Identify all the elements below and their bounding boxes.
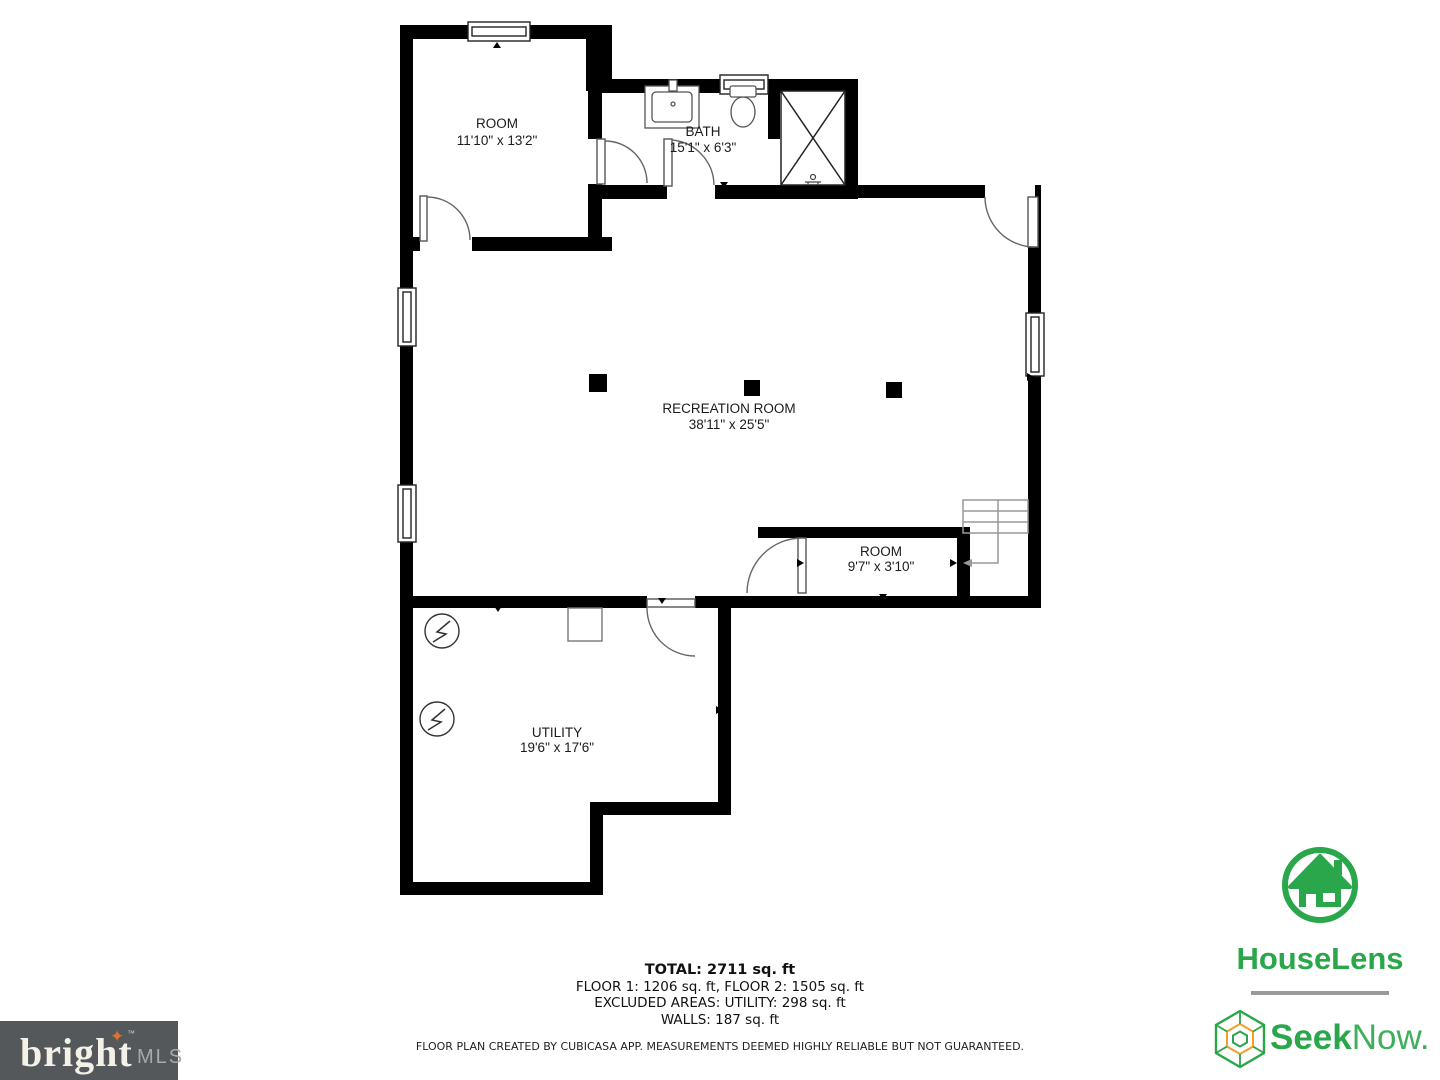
water-heater: [568, 608, 602, 641]
dims-bedroom: 11'10" x 13'2": [457, 133, 538, 148]
door-bedroom: [420, 196, 470, 241]
window-recreation-left-2: [398, 485, 416, 542]
walls: [400, 25, 1041, 895]
label-bath: BATH: [685, 124, 720, 139]
label-recreation: RECREATION ROOM: [662, 401, 795, 416]
door-bedroom-bath: [597, 139, 647, 184]
dims-recreation: 38'11" x 25'5": [689, 417, 770, 432]
electrical-panel-icon-1: [425, 614, 459, 648]
logo-divider: [1251, 991, 1389, 995]
total-area: TOTAL: 2711 sq. ft: [0, 962, 1440, 979]
door-recreation: [985, 197, 1038, 247]
window-recreation-right: [1026, 313, 1044, 376]
label-small-room: ROOM: [860, 544, 902, 559]
bright-mls-logo: bright ✦ ™ MLS: [0, 1021, 178, 1080]
label-bedroom: ROOM: [476, 116, 518, 131]
houselens-logo: HouseLens: [1230, 840, 1410, 995]
electrical-panel-icon-2: [420, 702, 454, 736]
dims-utility: 19'6" x 17'6": [520, 740, 594, 755]
dims-bath: 15'1" x 6'3": [670, 140, 737, 155]
utility-fixtures: [420, 608, 602, 736]
doors: [420, 139, 1038, 656]
stairs: [963, 500, 1028, 567]
seeknow-hex-icon: [1212, 1008, 1270, 1070]
floor-areas: FLOOR 1: 1206 sq. ft, FLOOR 2: 1505 sq. …: [0, 979, 1440, 996]
floor-plan-page: ROOM 11'10" x 13'2" BATH 15'1" x 6'3" RE…: [0, 0, 1440, 1080]
floor-plan-drawing: ROOM 11'10" x 13'2" BATH 15'1" x 6'3" RE…: [0, 0, 1440, 1080]
window-recreation-left-1: [398, 288, 416, 346]
dims-small-room: 9'7" x 3'10": [848, 559, 915, 574]
seeknow-logo: SeekNow.: [1212, 1008, 1440, 1074]
sink: [645, 80, 699, 128]
label-utility: UTILITY: [532, 725, 582, 740]
shower: [781, 91, 845, 185]
trademark-symbol: ™: [127, 1029, 135, 1038]
seeknow-word-now: Now.: [1352, 1018, 1430, 1057]
toilet: [730, 86, 756, 127]
columns: [589, 374, 902, 398]
seeknow-word-seek: Seek: [1270, 1018, 1352, 1057]
houselens-wordmark: HouseLens: [1230, 941, 1410, 977]
room-labels: ROOM 11'10" x 13'2" BATH 15'1" x 6'3" RE…: [457, 116, 915, 755]
houselens-house-icon: [1230, 840, 1410, 932]
door-utility: [647, 599, 695, 656]
bath-fixtures: [645, 80, 845, 185]
window-bedroom-top: [468, 22, 530, 41]
sparkle-icon: ✦: [110, 1027, 124, 1047]
mls-wordmark: MLS: [137, 1046, 184, 1069]
windows: [398, 22, 1044, 542]
seeknow-wordmark: SeekNow.: [1270, 1018, 1430, 1058]
